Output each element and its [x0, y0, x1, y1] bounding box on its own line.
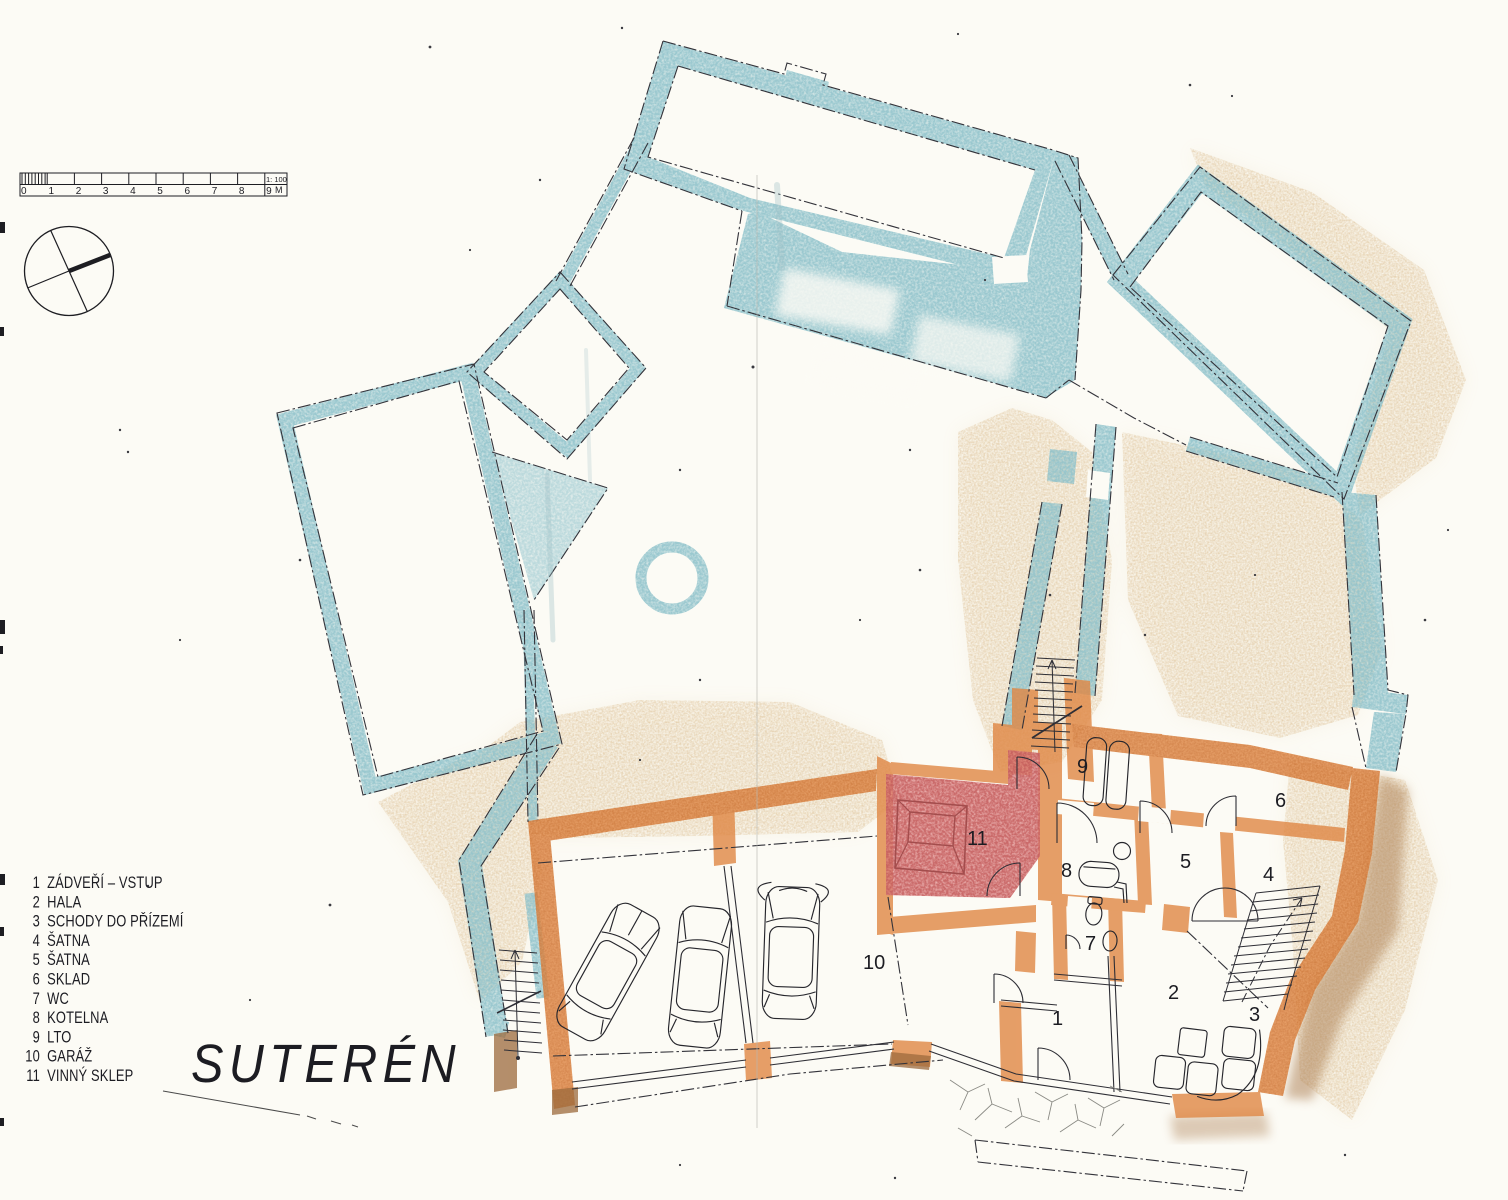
svg-text:11: 11 — [967, 828, 988, 850]
svg-text:1: 1 — [1052, 1008, 1063, 1030]
svg-text:5: 5 — [1180, 851, 1191, 873]
svg-text:GARÁŽ: GARÁŽ — [47, 1047, 92, 1066]
svg-text:9: 9 — [266, 186, 272, 197]
svg-text:WC: WC — [47, 989, 69, 1008]
svg-text:SUTERÉN: SUTERÉN — [191, 1033, 461, 1094]
svg-text:6: 6 — [185, 186, 191, 197]
svg-text:HALA: HALA — [47, 893, 82, 912]
svg-text:ŠATNA: ŠATNA — [47, 951, 90, 970]
svg-text:4: 4 — [33, 931, 40, 950]
svg-text:8: 8 — [239, 186, 245, 197]
svg-text:8: 8 — [33, 1008, 40, 1027]
svg-text:3: 3 — [33, 912, 40, 931]
svg-text:11: 11 — [26, 1066, 40, 1085]
svg-text:7: 7 — [212, 186, 218, 197]
svg-text:9: 9 — [33, 1028, 40, 1047]
svg-text:10: 10 — [863, 952, 885, 974]
svg-text:4: 4 — [1263, 864, 1274, 886]
svg-text:2: 2 — [33, 893, 40, 912]
svg-text:1: 1 — [33, 873, 40, 892]
svg-text:KOTELNA: KOTELNA — [47, 1008, 109, 1027]
svg-text:SKLAD: SKLAD — [47, 970, 90, 989]
svg-text:10: 10 — [25, 1047, 40, 1066]
svg-text:3: 3 — [1249, 1004, 1260, 1026]
svg-text:M: M — [275, 185, 283, 195]
svg-text:3: 3 — [103, 186, 109, 197]
svg-text:7: 7 — [33, 989, 40, 1008]
svg-text:4: 4 — [130, 186, 136, 197]
svg-text:ŠATNA: ŠATNA — [47, 931, 90, 950]
svg-text:7: 7 — [1085, 933, 1096, 955]
svg-text:8: 8 — [1061, 860, 1072, 882]
svg-text:9: 9 — [1077, 756, 1088, 778]
svg-text:VINNÝ SKLEP: VINNÝ SKLEP — [47, 1066, 133, 1085]
svg-text:6: 6 — [33, 970, 40, 989]
svg-text:5: 5 — [157, 186, 163, 197]
svg-text:ZÁDVEŘÍ – VSTUP: ZÁDVEŘÍ – VSTUP — [47, 873, 163, 892]
svg-text:1: 1 — [49, 186, 55, 197]
svg-text:LTO: LTO — [47, 1028, 71, 1047]
svg-text:5: 5 — [33, 951, 40, 970]
svg-text:1: 100: 1: 100 — [266, 175, 287, 184]
svg-text:6: 6 — [1275, 790, 1286, 812]
svg-text:2: 2 — [1168, 982, 1179, 1004]
svg-text:0: 0 — [21, 186, 27, 197]
svg-text:2: 2 — [76, 186, 82, 197]
svg-text:SCHODY DO PŘÍZEMÍ: SCHODY DO PŘÍZEMÍ — [47, 912, 184, 931]
